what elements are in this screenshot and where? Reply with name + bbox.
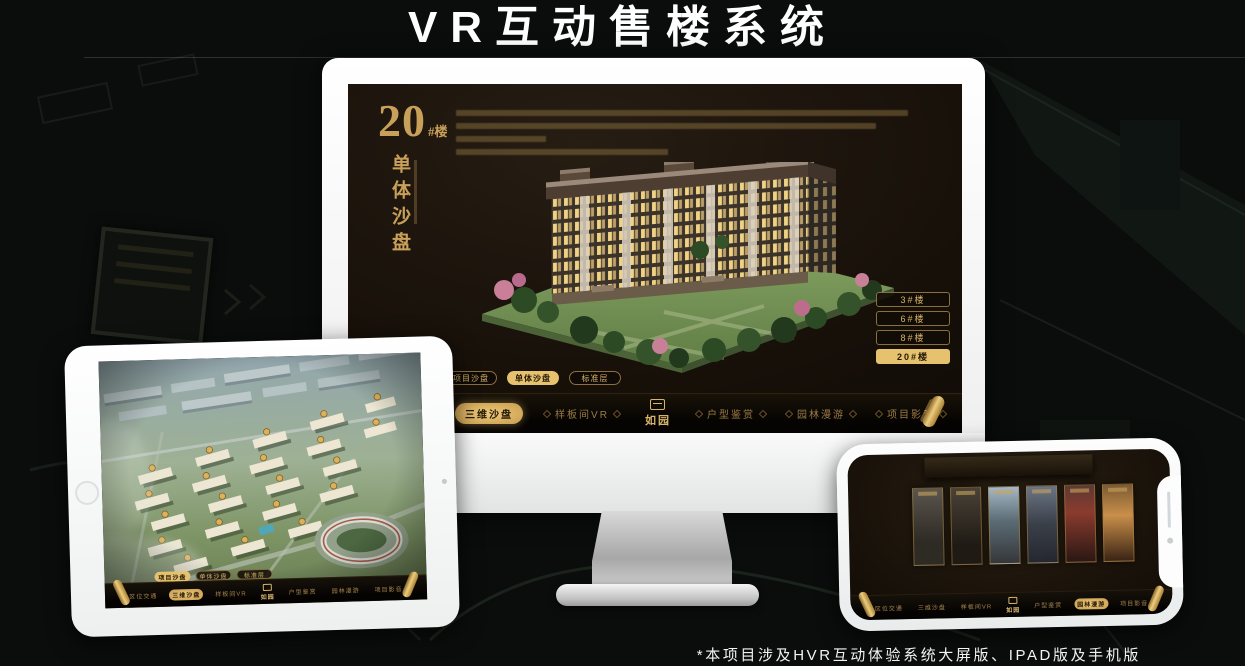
tablet-camera-dot <box>442 478 447 483</box>
floor-button-20[interactable]: 20#楼 <box>876 349 950 364</box>
tablet-menu-item-location-traffic[interactable]: 区位交通 <box>126 589 160 601</box>
sandtable-mode-switcher: 项目沙盘 单体沙盘 标准层 <box>445 371 621 385</box>
menu-item-model-room-vr[interactable]: 样板间VR <box>545 403 619 424</box>
speaker-slit-icon <box>1167 491 1171 527</box>
tablet-home-button <box>75 480 100 505</box>
floor-button-8[interactable]: 8#楼 <box>876 330 950 345</box>
vr-scene-panel-stairs[interactable] <box>950 487 983 566</box>
monitor-stand-neck <box>592 511 732 587</box>
tablet-menu-item-project-video[interactable]: 项目影音 <box>371 583 405 595</box>
intro-paragraph-blurred <box>456 110 908 162</box>
ruyuan-logo: 如园 <box>1006 596 1020 613</box>
vr-scene-panel-building[interactable] <box>1026 485 1059 564</box>
framed-plaque <box>91 226 214 345</box>
vr-scene-panel-red-wall[interactable] <box>1064 484 1097 563</box>
seal-icon <box>263 583 272 590</box>
vr-scene-panels <box>912 483 1135 566</box>
tablet-screen: 项目沙盘 单体沙盘 标准层 区位交通 三维沙盘 样板间VR 如园 户型鉴赏 园林… <box>98 353 427 609</box>
vr-scene-panel-shelf[interactable] <box>1102 483 1135 562</box>
vr-scene-panel-garden[interactable] <box>988 486 1021 565</box>
tablet-menu-item-3d-sandtable[interactable]: 三维沙盘 <box>169 588 203 600</box>
phone-menu-item-location-traffic[interactable]: 区位交通 <box>872 602 906 614</box>
phone-menu-zone: 区位交通 三维沙盘 样板间VR 如园 户型鉴赏 园林漫游 项目影音 <box>850 589 1172 621</box>
menu-item-garden-tour[interactable]: 园林漫游 <box>787 403 855 424</box>
phone-menu-item-project-video[interactable]: 项目影音 <box>1117 597 1151 609</box>
monitor-stand-base <box>556 584 759 606</box>
floor-selector: 3#楼 6#楼 8#楼 20#楼 <box>876 292 950 364</box>
phone-menu-bar: 区位交通 三维沙盘 样板间VR 如园 户型鉴赏 园林漫游 项目影音 <box>850 589 1172 621</box>
phone-notch <box>1157 475 1183 587</box>
building-model-illustration <box>464 162 900 376</box>
camera-dot-icon <box>1167 537 1173 543</box>
floor-button-3[interactable]: 3#楼 <box>876 292 950 307</box>
tablet-menu-item-floorplan[interactable]: 户型鉴赏 <box>285 585 319 597</box>
vr-scene-panel-interior[interactable] <box>912 487 945 566</box>
phone-device: 区位交通 三维沙盘 样板间VR 如园 户型鉴赏 园林漫游 项目影音 <box>836 437 1184 631</box>
menu-item-floorplan[interactable]: 户型鉴赏 <box>697 403 765 424</box>
seal-icon <box>1008 596 1017 603</box>
floor-button-6[interactable]: 6#楼 <box>876 311 950 326</box>
phone-screen: 区位交通 三维沙盘 样板间VR 如园 户型鉴赏 园林漫游 项目影音 <box>847 449 1172 621</box>
tablet-menu-item-garden-tour[interactable]: 园林漫游 <box>328 584 362 596</box>
ruyuan-logo: 如园 <box>645 399 671 428</box>
page-title: VR互动售楼系统 <box>0 0 1245 56</box>
promo-composite: VR互动售楼系统 20#楼 单体沙盘 <box>0 0 1245 666</box>
tablet-device: 项目沙盘 单体沙盘 标准层 区位交通 三维沙盘 样板间VR 如园 户型鉴赏 园林… <box>64 336 460 638</box>
mode-button-single-sandtable[interactable]: 单体沙盘 <box>507 371 559 385</box>
menu-item-3d-sandtable[interactable]: 三维沙盘 <box>455 403 523 424</box>
phone-menu-item-garden-tour[interactable]: 园林漫游 <box>1074 597 1108 609</box>
pavilion-backdrop <box>925 454 1093 478</box>
phone-menu-item-model-room-vr[interactable]: 样板间VR <box>958 600 996 612</box>
footnote: *本项目涉及HVR互动体验系统大屏版、IPAD版及手机版 <box>697 644 1141 665</box>
ruyuan-logo: 如园 <box>260 583 274 600</box>
mode-button-standard-floor[interactable]: 标准层 <box>569 371 621 385</box>
building-subtitle: 单体沙盘 <box>386 154 413 258</box>
building-title: 20#楼 <box>378 94 448 147</box>
seal-icon <box>650 399 665 410</box>
phone-menu-item-3d-sandtable[interactable]: 三维沙盘 <box>915 601 949 613</box>
subtitle-accent-line <box>414 160 417 224</box>
phone-menu-item-floorplan[interactable]: 户型鉴赏 <box>1031 598 1065 610</box>
tablet-menu-item-model-room-vr[interactable]: 样板间VR <box>212 587 250 599</box>
